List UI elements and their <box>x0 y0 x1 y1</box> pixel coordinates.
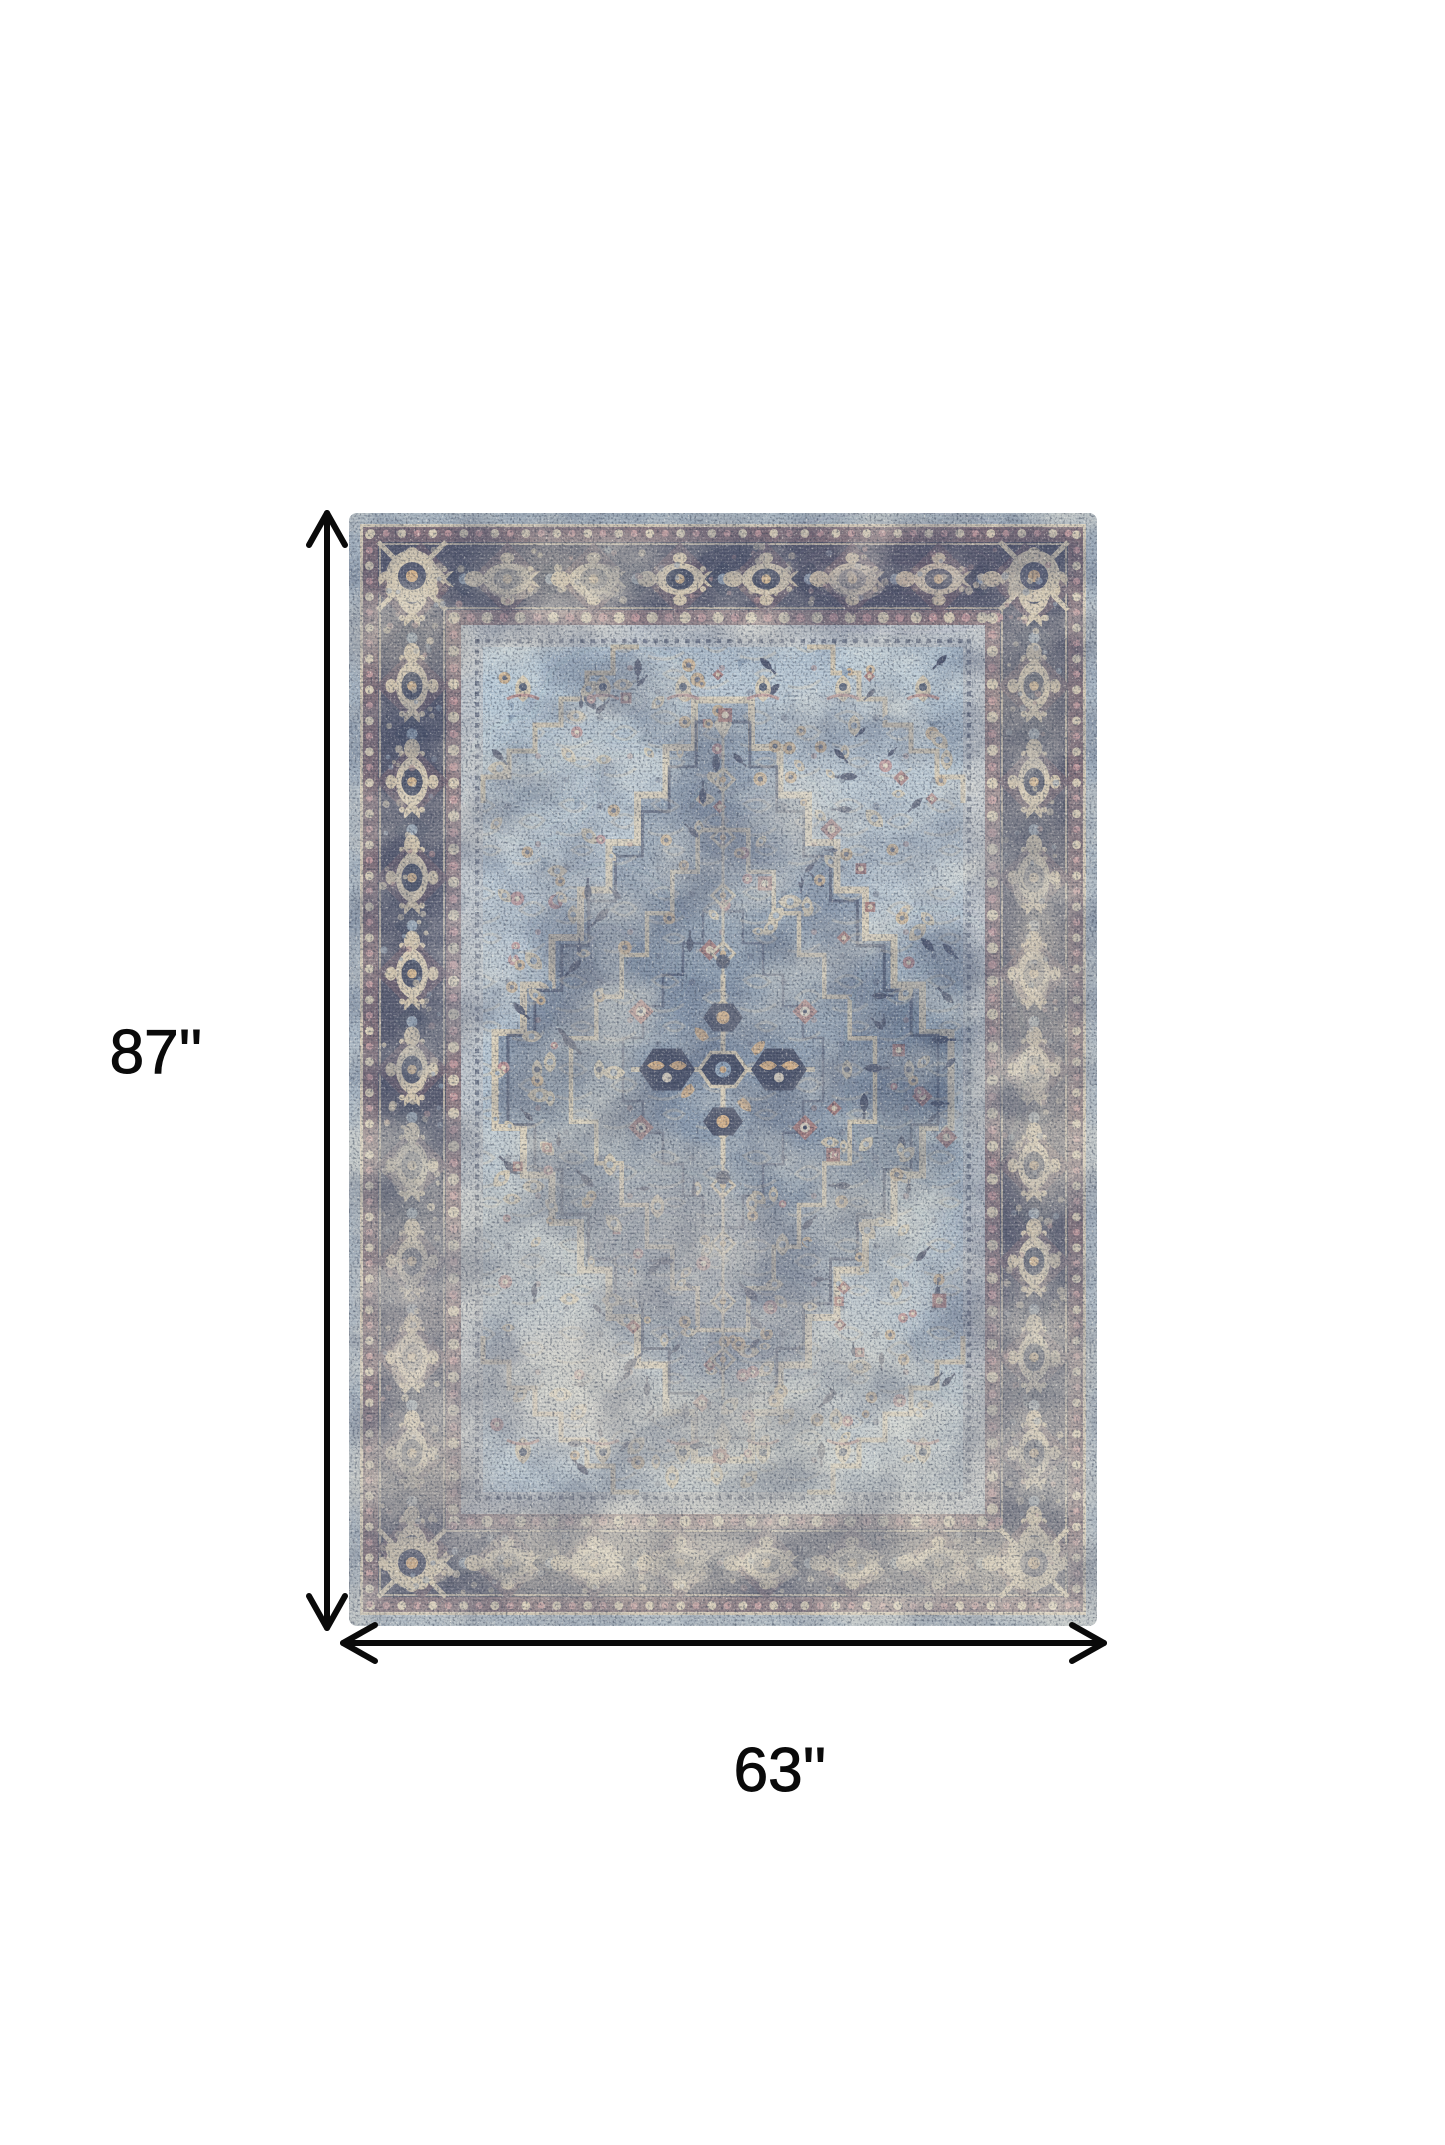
svg-text:63'': 63'' <box>734 1736 827 1805</box>
svg-text:87'': 87'' <box>110 1018 203 1087</box>
